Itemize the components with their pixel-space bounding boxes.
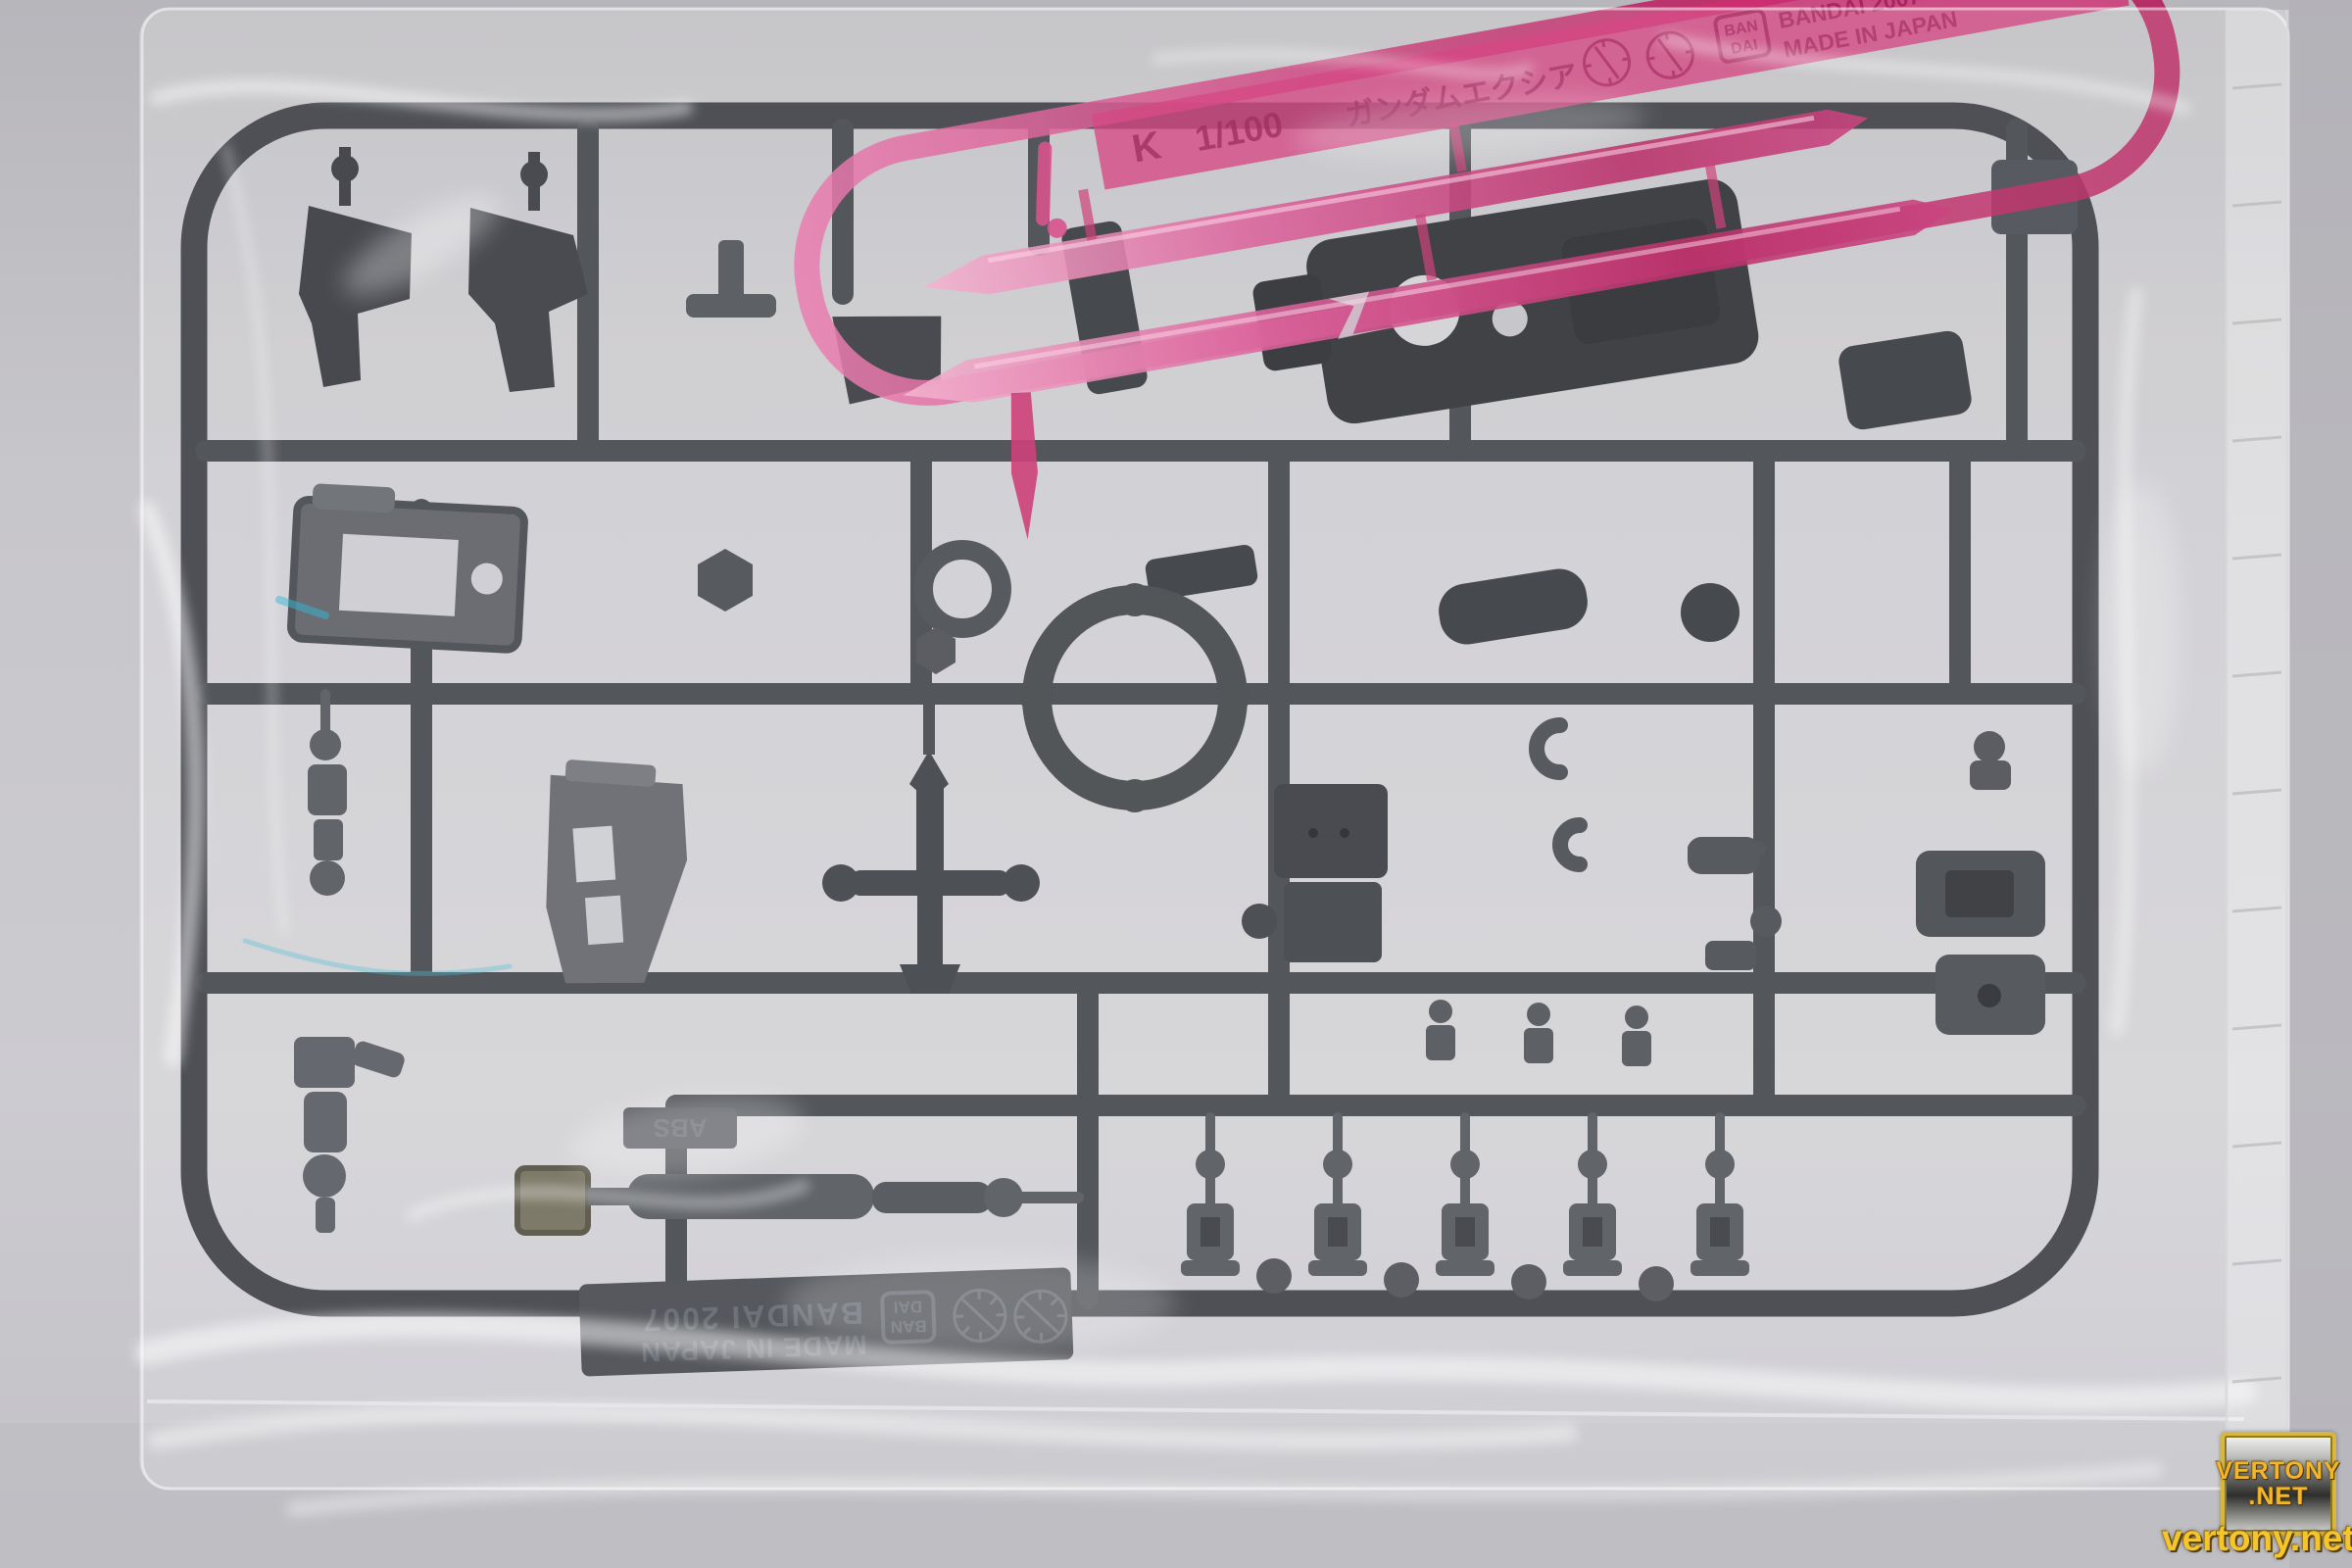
photo-gunpla-runner-in-bag: ABS BANDAI 2007 MADE IN JAPAN BAN DAI xyxy=(0,0,2352,1568)
watermark-badge-line2: .NET xyxy=(2249,1484,2309,1509)
bag-seal-band xyxy=(2227,10,2287,1486)
bag-sheen xyxy=(139,8,2289,1509)
watermark-badge-line1: VERTONY xyxy=(2216,1458,2340,1484)
photo-scene: ABS BANDAI 2007 MADE IN JAPAN BAN DAI xyxy=(0,0,2352,1568)
backdrop-right-band xyxy=(2289,0,2352,1568)
watermark-url: vertony.net xyxy=(2162,1518,2352,1559)
